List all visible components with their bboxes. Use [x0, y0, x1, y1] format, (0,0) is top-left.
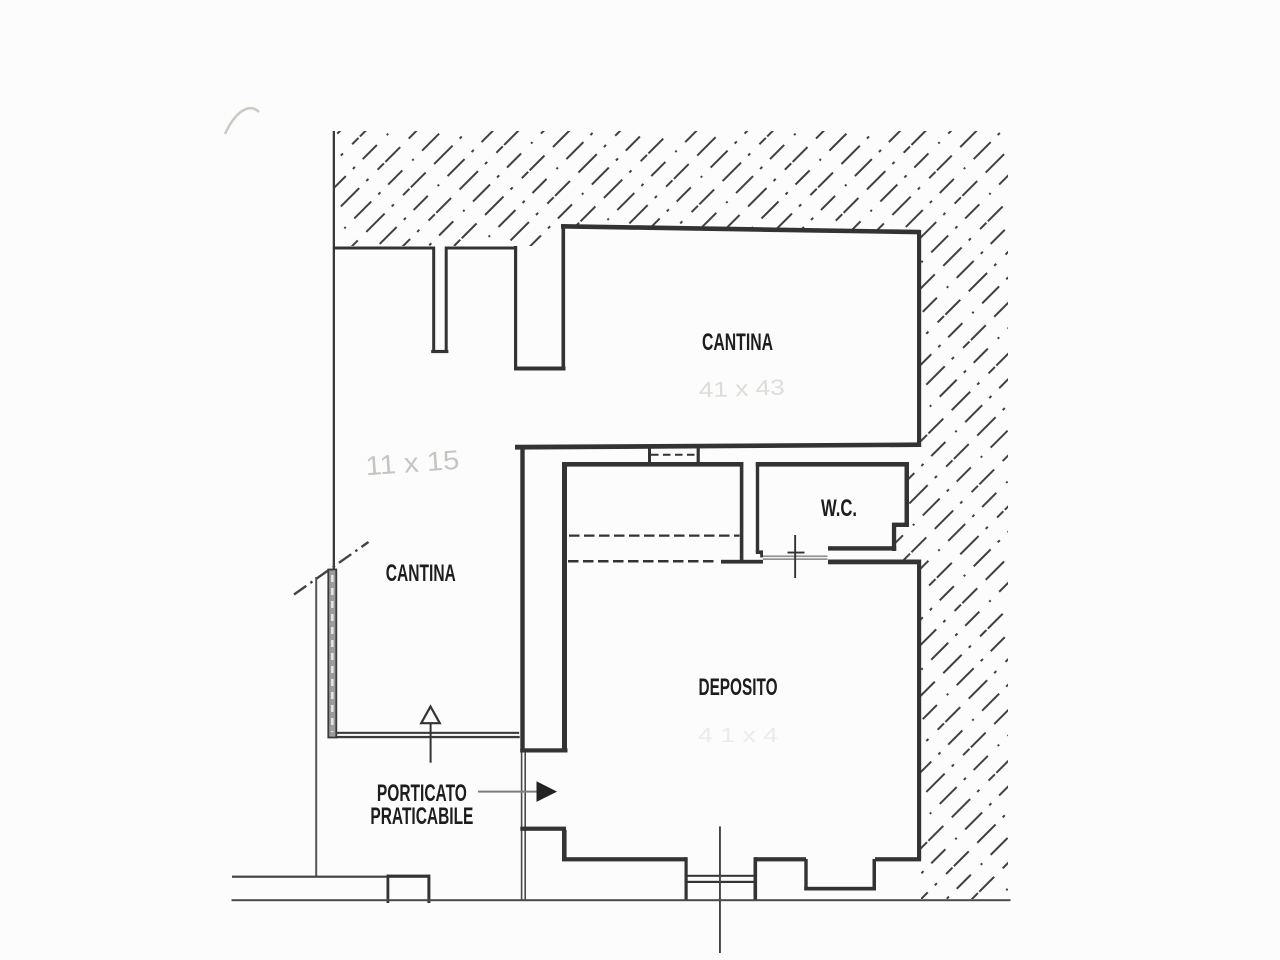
- svg-text:CANTINA: CANTINA: [386, 560, 456, 587]
- svg-text:PRATICABILE: PRATICABILE: [370, 803, 473, 830]
- svg-text:DEPOSITO: DEPOSITO: [699, 674, 778, 701]
- svg-text:4 1 x 4: 4 1 x 4: [698, 725, 778, 747]
- svg-text:41 x 43: 41 x 43: [698, 375, 785, 403]
- svg-text:CANTINA: CANTINA: [702, 329, 773, 356]
- svg-text:W.C.: W.C.: [821, 495, 857, 522]
